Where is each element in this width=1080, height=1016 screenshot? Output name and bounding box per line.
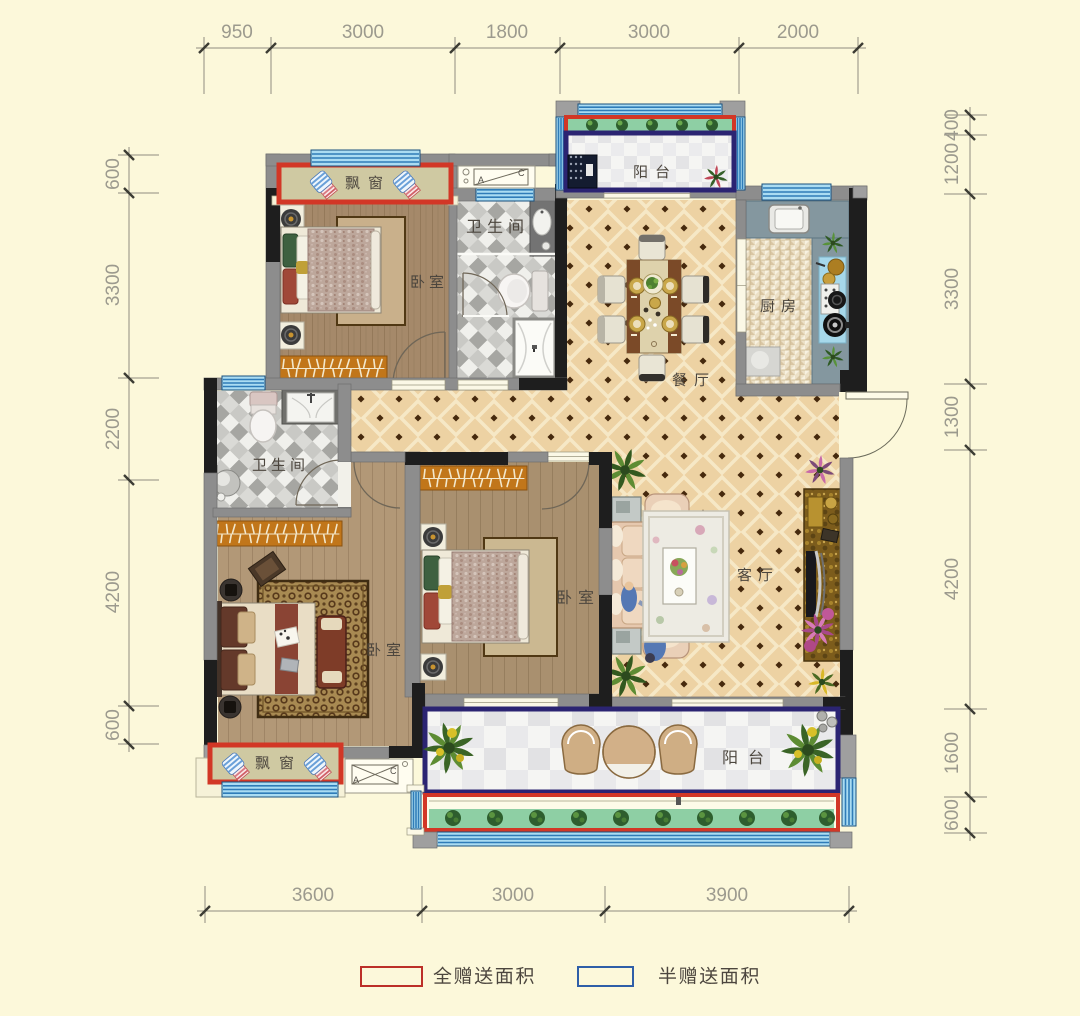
svg-text:2200: 2200	[103, 408, 124, 450]
svg-text:3000: 3000	[628, 22, 670, 43]
svg-text:C: C	[518, 168, 525, 178]
svg-text:3000: 3000	[492, 885, 534, 906]
svg-text:2000: 2000	[777, 22, 819, 43]
svg-text:4200: 4200	[103, 571, 124, 613]
svg-text:3600: 3600	[292, 885, 334, 906]
svg-text:3300: 3300	[103, 264, 124, 306]
svg-text:3300: 3300	[942, 268, 963, 310]
svg-text:4200: 4200	[942, 558, 963, 600]
svg-text:600: 600	[103, 709, 124, 741]
svg-text:950: 950	[221, 22, 253, 43]
svg-text:1800: 1800	[486, 22, 528, 43]
svg-text:3900: 3900	[706, 885, 748, 906]
svg-text:3000: 3000	[342, 22, 384, 43]
svg-text:600: 600	[942, 799, 963, 831]
svg-text:1200: 1200	[942, 143, 963, 185]
svg-text:C: C	[390, 766, 397, 776]
svg-text:1300: 1300	[942, 396, 963, 438]
svg-text:A: A	[353, 775, 359, 785]
svg-text:1600: 1600	[942, 732, 963, 774]
svg-text:400: 400	[942, 109, 963, 141]
svg-text:A: A	[478, 175, 484, 185]
svg-text:600: 600	[103, 158, 124, 190]
